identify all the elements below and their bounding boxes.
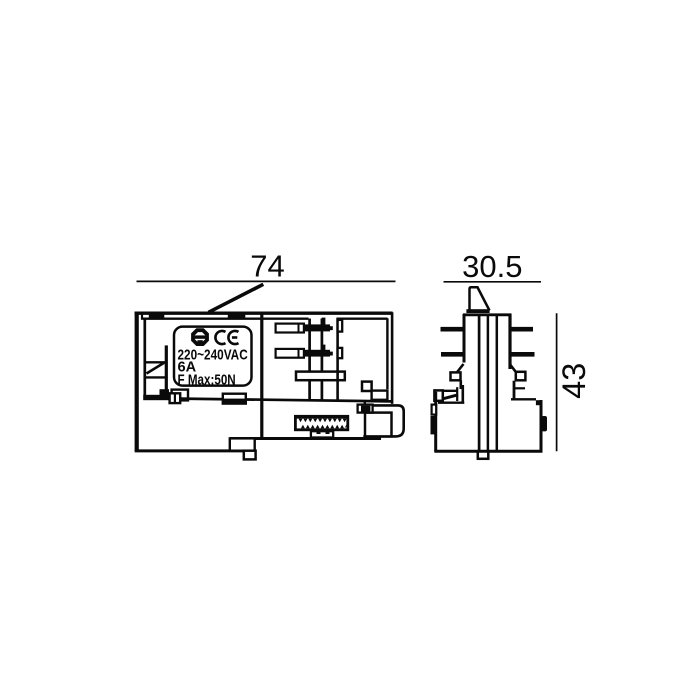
svg-text:74: 74 (250, 249, 284, 284)
svg-text:43: 43 (556, 363, 592, 399)
svg-text:F Max:50N: F Max:50N (178, 372, 236, 388)
svg-text:30.5: 30.5 (462, 249, 522, 284)
